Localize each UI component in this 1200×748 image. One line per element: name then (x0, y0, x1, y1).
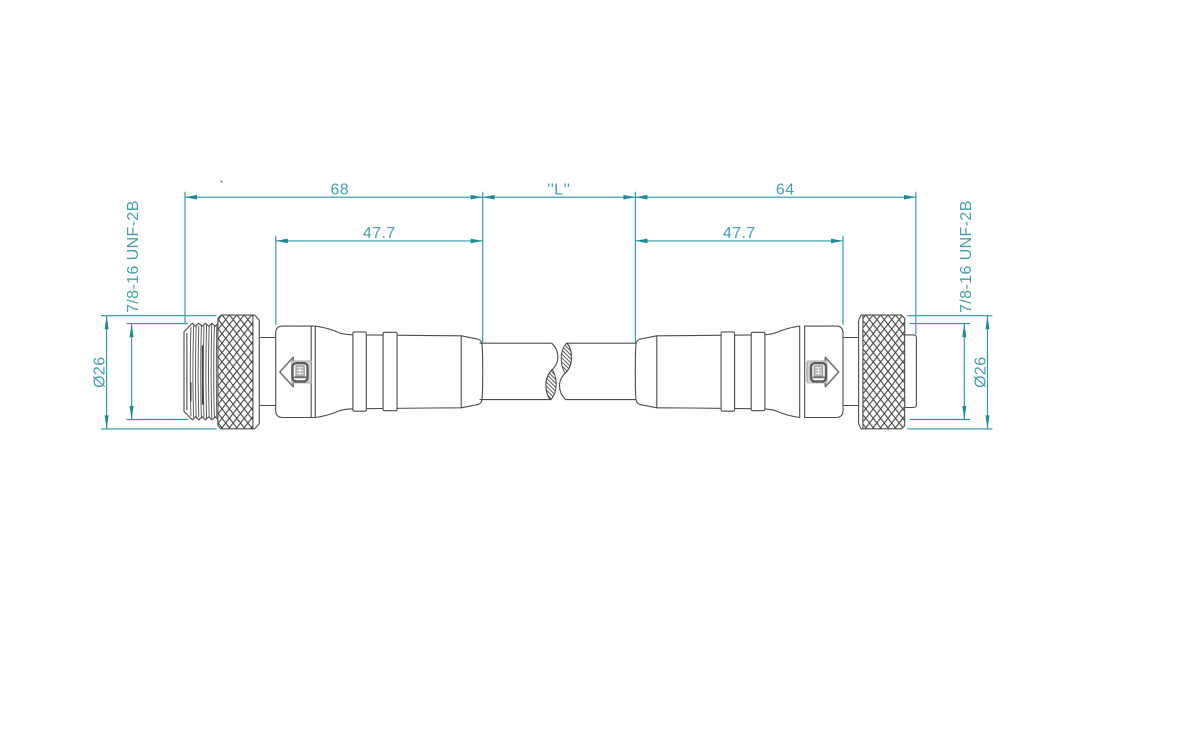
svg-text:47.7: 47.7 (723, 225, 756, 242)
svg-text:7/8-16 UNF-2B: 7/8-16 UNF-2B (125, 200, 142, 313)
svg-text:Ø26: Ø26 (973, 356, 990, 387)
svg-text:64: 64 (776, 181, 795, 198)
svg-text:7/8-16 UNF-2B: 7/8-16 UNF-2B (958, 200, 975, 313)
svg-text:47.7: 47.7 (363, 225, 396, 242)
svg-text:''L'': ''L'' (547, 181, 570, 198)
svg-text:Ø26: Ø26 (91, 356, 108, 387)
svg-text:68: 68 (330, 181, 349, 198)
